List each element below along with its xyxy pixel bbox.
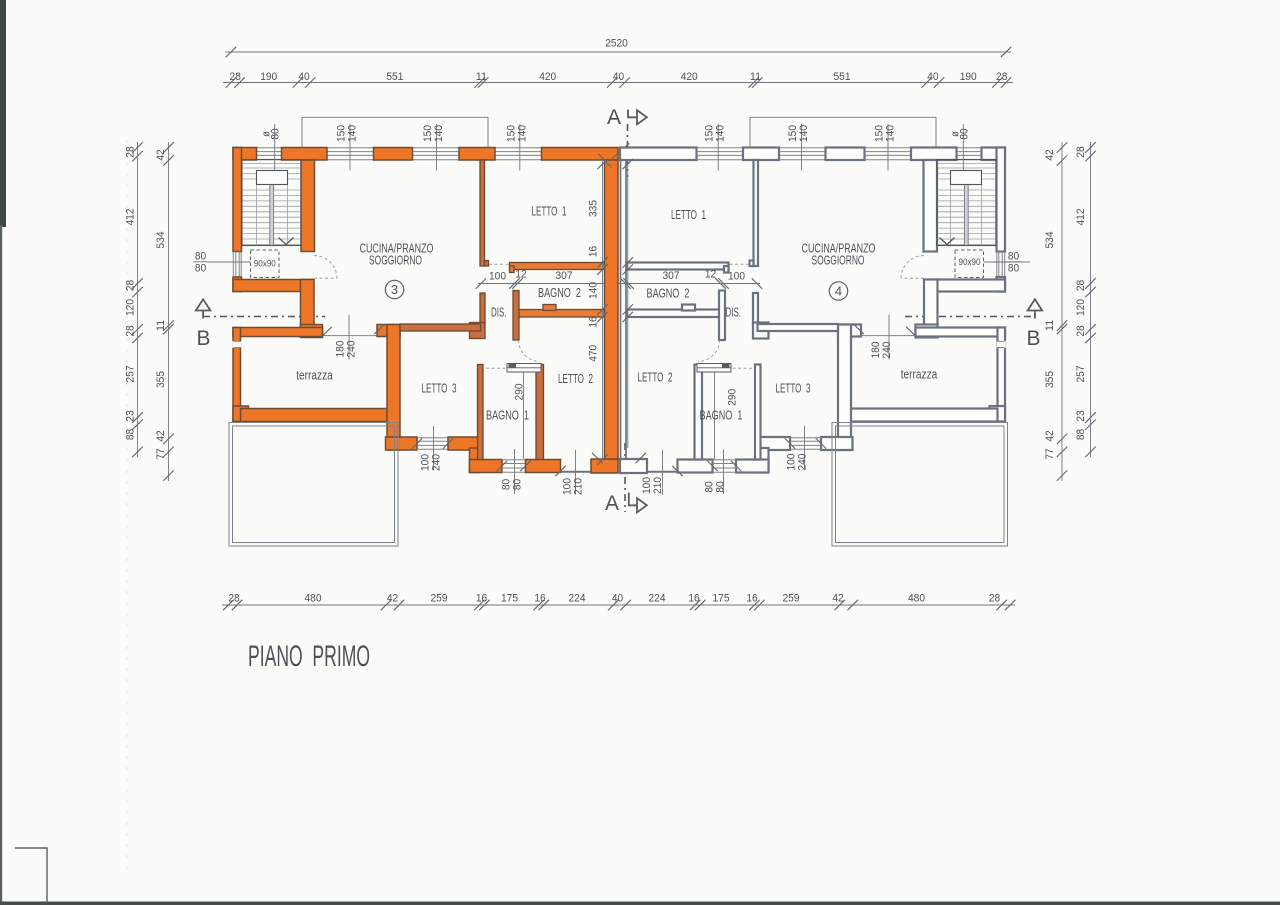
svg-text:420: 420 [539, 71, 556, 83]
svg-text:DIS.: DIS. [726, 304, 742, 319]
svg-text:77: 77 [155, 448, 167, 459]
svg-text:480: 480 [908, 592, 925, 604]
svg-text:80: 80 [195, 263, 206, 275]
svg-text:16: 16 [746, 592, 757, 604]
svg-text:LETTO 1: LETTO 1 [671, 207, 706, 222]
svg-text:40: 40 [298, 71, 309, 83]
svg-text:257: 257 [1075, 366, 1087, 383]
svg-text:2520: 2520 [605, 38, 628, 50]
svg-text:28: 28 [1075, 146, 1087, 157]
svg-text:B: B [196, 327, 210, 350]
svg-text:120: 120 [1075, 299, 1087, 316]
svg-text:SOGGIORNO: SOGGIORNO [812, 252, 865, 267]
svg-text:224: 224 [649, 592, 666, 604]
svg-text:100: 100 [489, 271, 506, 283]
svg-text:480: 480 [305, 592, 322, 604]
svg-text:28: 28 [230, 71, 241, 83]
svg-text:175: 175 [713, 592, 730, 604]
svg-text:28: 28 [1075, 325, 1087, 336]
svg-text:551: 551 [834, 71, 851, 83]
svg-text:190: 190 [260, 71, 277, 83]
svg-text:307: 307 [663, 270, 680, 282]
svg-text:80: 80 [195, 251, 206, 263]
svg-text:A: A [607, 106, 621, 129]
svg-text:140: 140 [885, 125, 897, 142]
svg-text:210: 210 [573, 478, 585, 495]
svg-text:23: 23 [1075, 410, 1087, 421]
svg-text:LETTO 2: LETTO 2 [558, 371, 593, 386]
svg-text:12: 12 [705, 269, 716, 281]
svg-text:16: 16 [588, 316, 600, 327]
svg-text:BAGNO 2: BAGNO 2 [647, 285, 690, 300]
svg-text:307: 307 [556, 270, 573, 282]
svg-text:551: 551 [386, 71, 403, 83]
svg-text:28: 28 [996, 71, 1007, 83]
svg-text:355: 355 [155, 371, 167, 388]
svg-text:140: 140 [516, 125, 528, 142]
svg-text:335: 335 [588, 200, 600, 217]
svg-text:28: 28 [989, 592, 1000, 604]
svg-text:3: 3 [391, 282, 398, 297]
svg-text:534: 534 [1044, 232, 1056, 249]
svg-text:140: 140 [433, 125, 445, 142]
svg-text:BAGNO 2: BAGNO 2 [538, 285, 581, 300]
svg-text:42: 42 [387, 592, 398, 604]
svg-text:40: 40 [613, 71, 624, 83]
svg-text:42: 42 [1044, 149, 1056, 160]
svg-text:11: 11 [476, 71, 487, 83]
svg-text:259: 259 [431, 592, 448, 604]
svg-text:16: 16 [688, 592, 699, 604]
svg-text:28: 28 [125, 146, 137, 157]
svg-text:80: 80 [959, 128, 971, 139]
svg-text:16: 16 [476, 592, 487, 604]
svg-text:240: 240 [797, 454, 809, 471]
svg-text:140: 140 [347, 125, 359, 142]
svg-text:190: 190 [960, 71, 977, 83]
svg-text:534: 534 [155, 232, 167, 249]
svg-text:412: 412 [125, 209, 137, 226]
svg-text:16: 16 [588, 246, 600, 257]
svg-text:11: 11 [155, 320, 167, 331]
svg-text:210: 210 [652, 477, 664, 494]
svg-text:90x90: 90x90 [959, 257, 981, 268]
svg-text:240: 240 [346, 341, 358, 358]
svg-text:LETTO 1: LETTO 1 [532, 204, 567, 219]
svg-text:100: 100 [728, 271, 745, 283]
svg-text:42: 42 [1044, 430, 1056, 441]
svg-text:80: 80 [1008, 251, 1019, 263]
svg-text:BAGNO 1: BAGNO 1 [700, 408, 743, 423]
svg-text:28: 28 [125, 325, 137, 336]
svg-text:420: 420 [681, 71, 698, 83]
svg-text:240: 240 [431, 454, 443, 471]
svg-text:80: 80 [1008, 263, 1019, 275]
svg-text:PIANO PRIMO: PIANO PRIMO [248, 640, 370, 673]
svg-text:120: 120 [125, 299, 137, 316]
svg-text:140: 140 [715, 125, 727, 142]
svg-text:A: A [605, 492, 619, 515]
svg-text:B: B [1026, 327, 1040, 350]
svg-text:355: 355 [1044, 371, 1056, 388]
svg-text:LETTO 3: LETTO 3 [422, 381, 457, 396]
svg-text:80: 80 [715, 481, 727, 492]
svg-text:DIS.: DIS. [491, 304, 507, 319]
svg-text:4: 4 [835, 284, 842, 299]
svg-text:175: 175 [501, 592, 518, 604]
svg-text:BAGNO 1: BAGNO 1 [486, 408, 529, 423]
svg-text:28: 28 [125, 280, 137, 291]
svg-text:42: 42 [832, 592, 843, 604]
svg-text:140: 140 [588, 282, 600, 299]
svg-text:12: 12 [515, 269, 526, 281]
svg-text:11: 11 [750, 71, 761, 83]
svg-text:140: 140 [798, 125, 810, 142]
svg-text:42: 42 [155, 430, 167, 441]
svg-text:470: 470 [588, 345, 600, 362]
svg-text:257: 257 [125, 366, 137, 383]
svg-text:LETTO 2: LETTO 2 [638, 369, 673, 384]
svg-text:terrazza: terrazza [901, 367, 938, 382]
svg-text:42: 42 [155, 149, 167, 160]
svg-text:90x90: 90x90 [254, 259, 276, 270]
svg-text:16: 16 [534, 592, 545, 604]
svg-text:412: 412 [1075, 209, 1087, 226]
svg-text:23: 23 [125, 410, 137, 421]
svg-text:28: 28 [228, 592, 239, 604]
svg-text:88: 88 [125, 429, 137, 440]
svg-text:40: 40 [927, 71, 938, 83]
svg-text:77: 77 [1044, 448, 1056, 459]
svg-text:LETTO 3: LETTO 3 [776, 381, 811, 396]
svg-text:88: 88 [1075, 429, 1087, 440]
svg-text:290: 290 [727, 389, 739, 406]
svg-text:SOGGIORNO: SOGGIORNO [369, 252, 422, 267]
svg-text:259: 259 [783, 592, 800, 604]
svg-text:224: 224 [569, 592, 586, 604]
svg-text:290: 290 [514, 384, 526, 401]
svg-text:80: 80 [270, 128, 282, 139]
svg-text:terrazza: terrazza [296, 367, 333, 382]
svg-text:40: 40 [612, 592, 623, 604]
svg-text:240: 240 [881, 342, 893, 359]
svg-text:80: 80 [512, 479, 524, 490]
svg-text:28: 28 [1075, 280, 1087, 291]
svg-text:11: 11 [1044, 320, 1056, 331]
